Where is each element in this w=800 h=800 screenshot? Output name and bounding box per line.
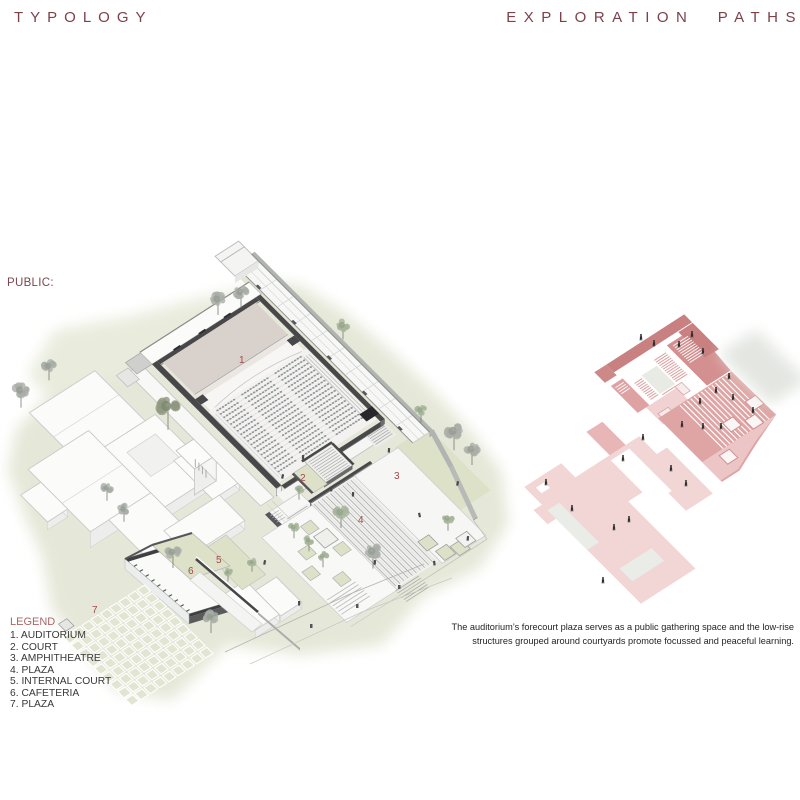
svg-text:3: 3 (394, 471, 400, 482)
svg-text:6: 6 (188, 566, 194, 577)
svg-text:1: 1 (239, 355, 245, 366)
svg-text:7: 7 (92, 605, 98, 616)
svg-text:4: 4 (358, 515, 364, 526)
svg-text:5: 5 (216, 555, 222, 566)
svg-text:2: 2 (300, 473, 306, 484)
